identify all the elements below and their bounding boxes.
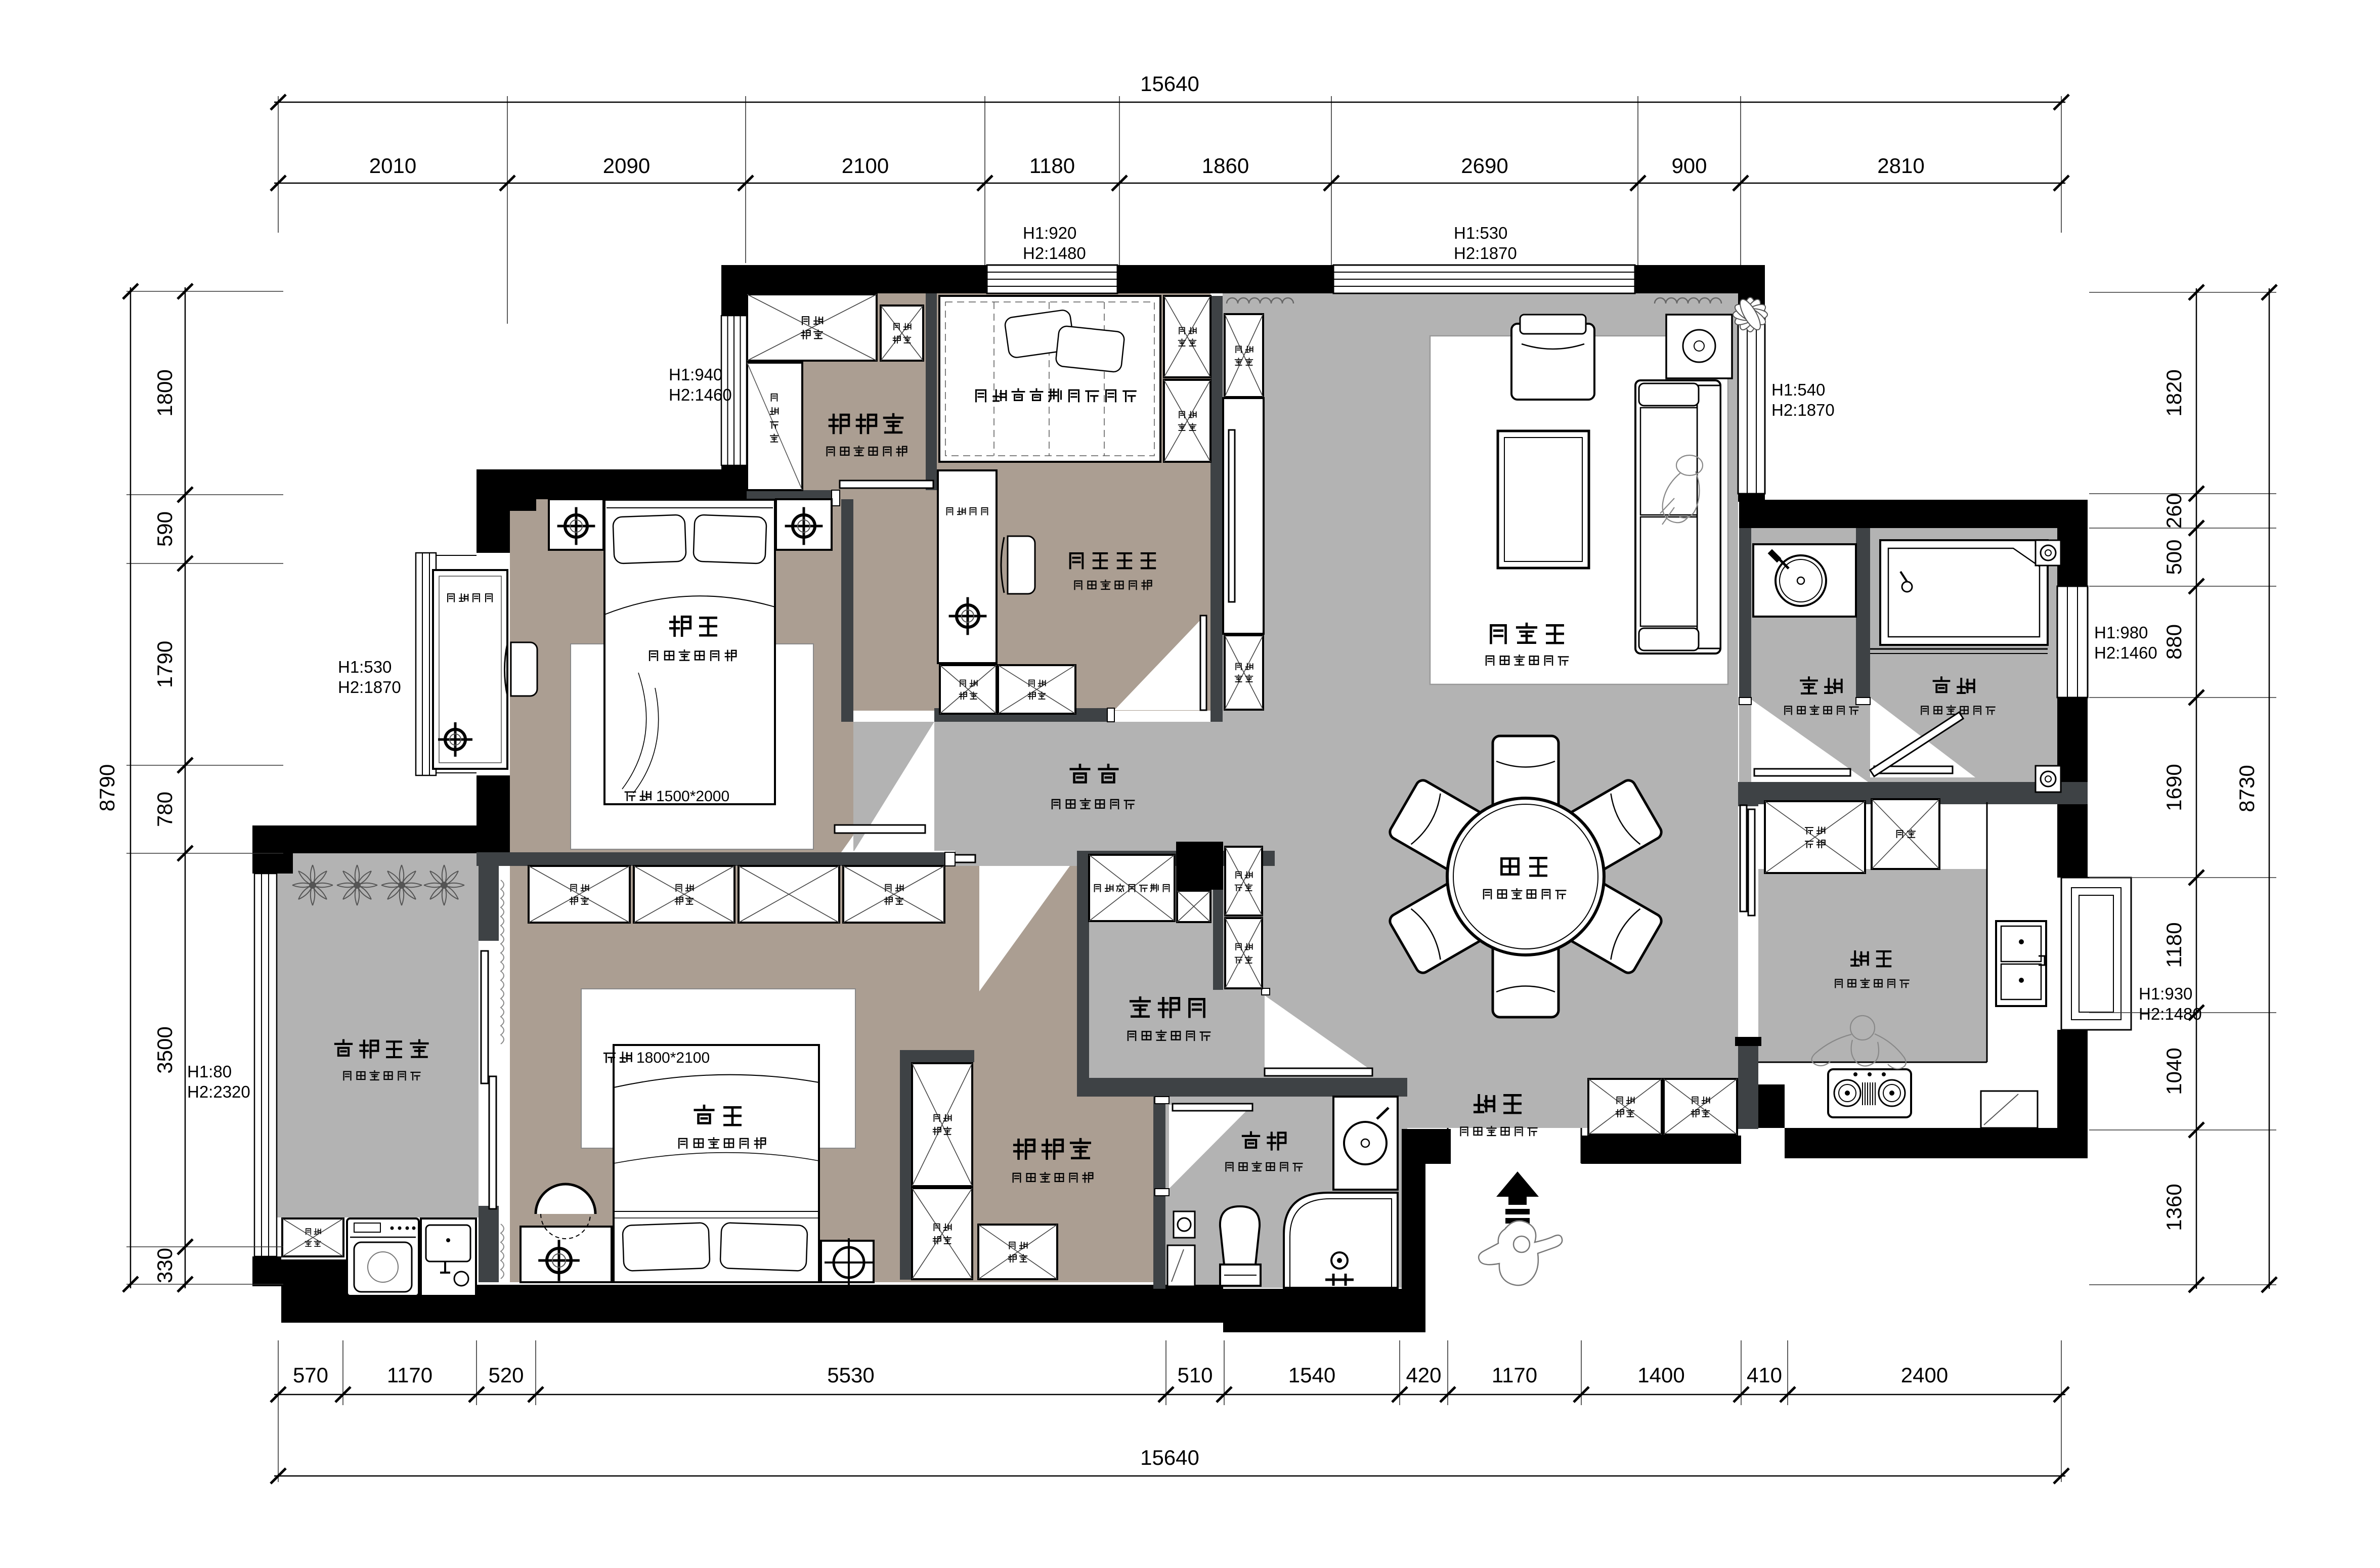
svg-text:H1:530: H1:530 [1454,224,1507,242]
svg-text:H1:80: H1:80 [187,1062,232,1081]
svg-text:H1:930: H1:930 [2139,984,2192,1003]
svg-text:500: 500 [2162,539,2186,575]
svg-text:590: 590 [153,511,177,547]
svg-text:1790: 1790 [153,641,177,688]
svg-text:330: 330 [153,1248,177,1283]
svg-text:2810: 2810 [1877,154,1924,178]
svg-text:1860: 1860 [1202,154,1249,178]
svg-text:2690: 2690 [1461,154,1508,178]
svg-text:1690: 1690 [2162,764,2186,811]
svg-text:1180: 1180 [2162,922,2186,968]
svg-text:1820: 1820 [2162,369,2186,416]
svg-text:3500: 3500 [153,1026,177,1073]
svg-text:15640: 15640 [1140,72,1199,96]
svg-text:H2:1480: H2:1480 [2139,1005,2202,1023]
svg-text:1180: 1180 [1029,154,1075,178]
svg-text:1170: 1170 [387,1363,432,1387]
svg-text:H1:920: H1:920 [1023,224,1076,242]
svg-text:510: 510 [1177,1363,1213,1387]
svg-text:H1:940: H1:940 [669,365,722,384]
svg-text:H2:2320: H2:2320 [187,1082,250,1101]
svg-text:H1:530: H1:530 [338,658,392,676]
svg-text:1360: 1360 [2162,1184,2186,1231]
svg-text:1040: 1040 [2162,1048,2186,1095]
svg-text:1170: 1170 [1492,1363,1537,1387]
svg-text:H2:1870: H2:1870 [1454,244,1517,263]
svg-text:2010: 2010 [369,154,416,178]
svg-text:8730: 8730 [2235,765,2259,812]
svg-text:2400: 2400 [1901,1363,1948,1387]
svg-text:H2:1480: H2:1480 [1023,244,1086,263]
svg-text:H2:1460: H2:1460 [2094,643,2157,662]
svg-text:5530: 5530 [827,1363,874,1387]
svg-text:2100: 2100 [842,154,889,178]
svg-text:780: 780 [153,792,177,827]
svg-text:260: 260 [2162,493,2186,529]
svg-text:1400: 1400 [1637,1363,1684,1387]
svg-text:900: 900 [1671,154,1707,178]
svg-text:H2:1870: H2:1870 [338,678,401,696]
svg-text:H1:980: H1:980 [2094,623,2148,642]
svg-text:520: 520 [488,1363,524,1387]
svg-text:420: 420 [1406,1363,1441,1387]
svg-text:880: 880 [2162,624,2186,660]
svg-text:H2:1870: H2:1870 [1771,401,1835,419]
svg-text:1800*2100: 1800*2100 [636,1050,710,1066]
svg-text:8790: 8790 [95,764,119,811]
svg-text:1800: 1800 [153,369,177,416]
svg-text:H2:1460: H2:1460 [669,385,732,404]
svg-text:570: 570 [293,1363,328,1387]
svg-text:1500*2000: 1500*2000 [656,788,729,805]
svg-text:2090: 2090 [603,154,650,178]
svg-text:1540: 1540 [1288,1363,1335,1387]
svg-text:15640: 15640 [1140,1446,1199,1469]
svg-text:H1:540: H1:540 [1771,380,1825,399]
svg-text:410: 410 [1747,1363,1782,1387]
